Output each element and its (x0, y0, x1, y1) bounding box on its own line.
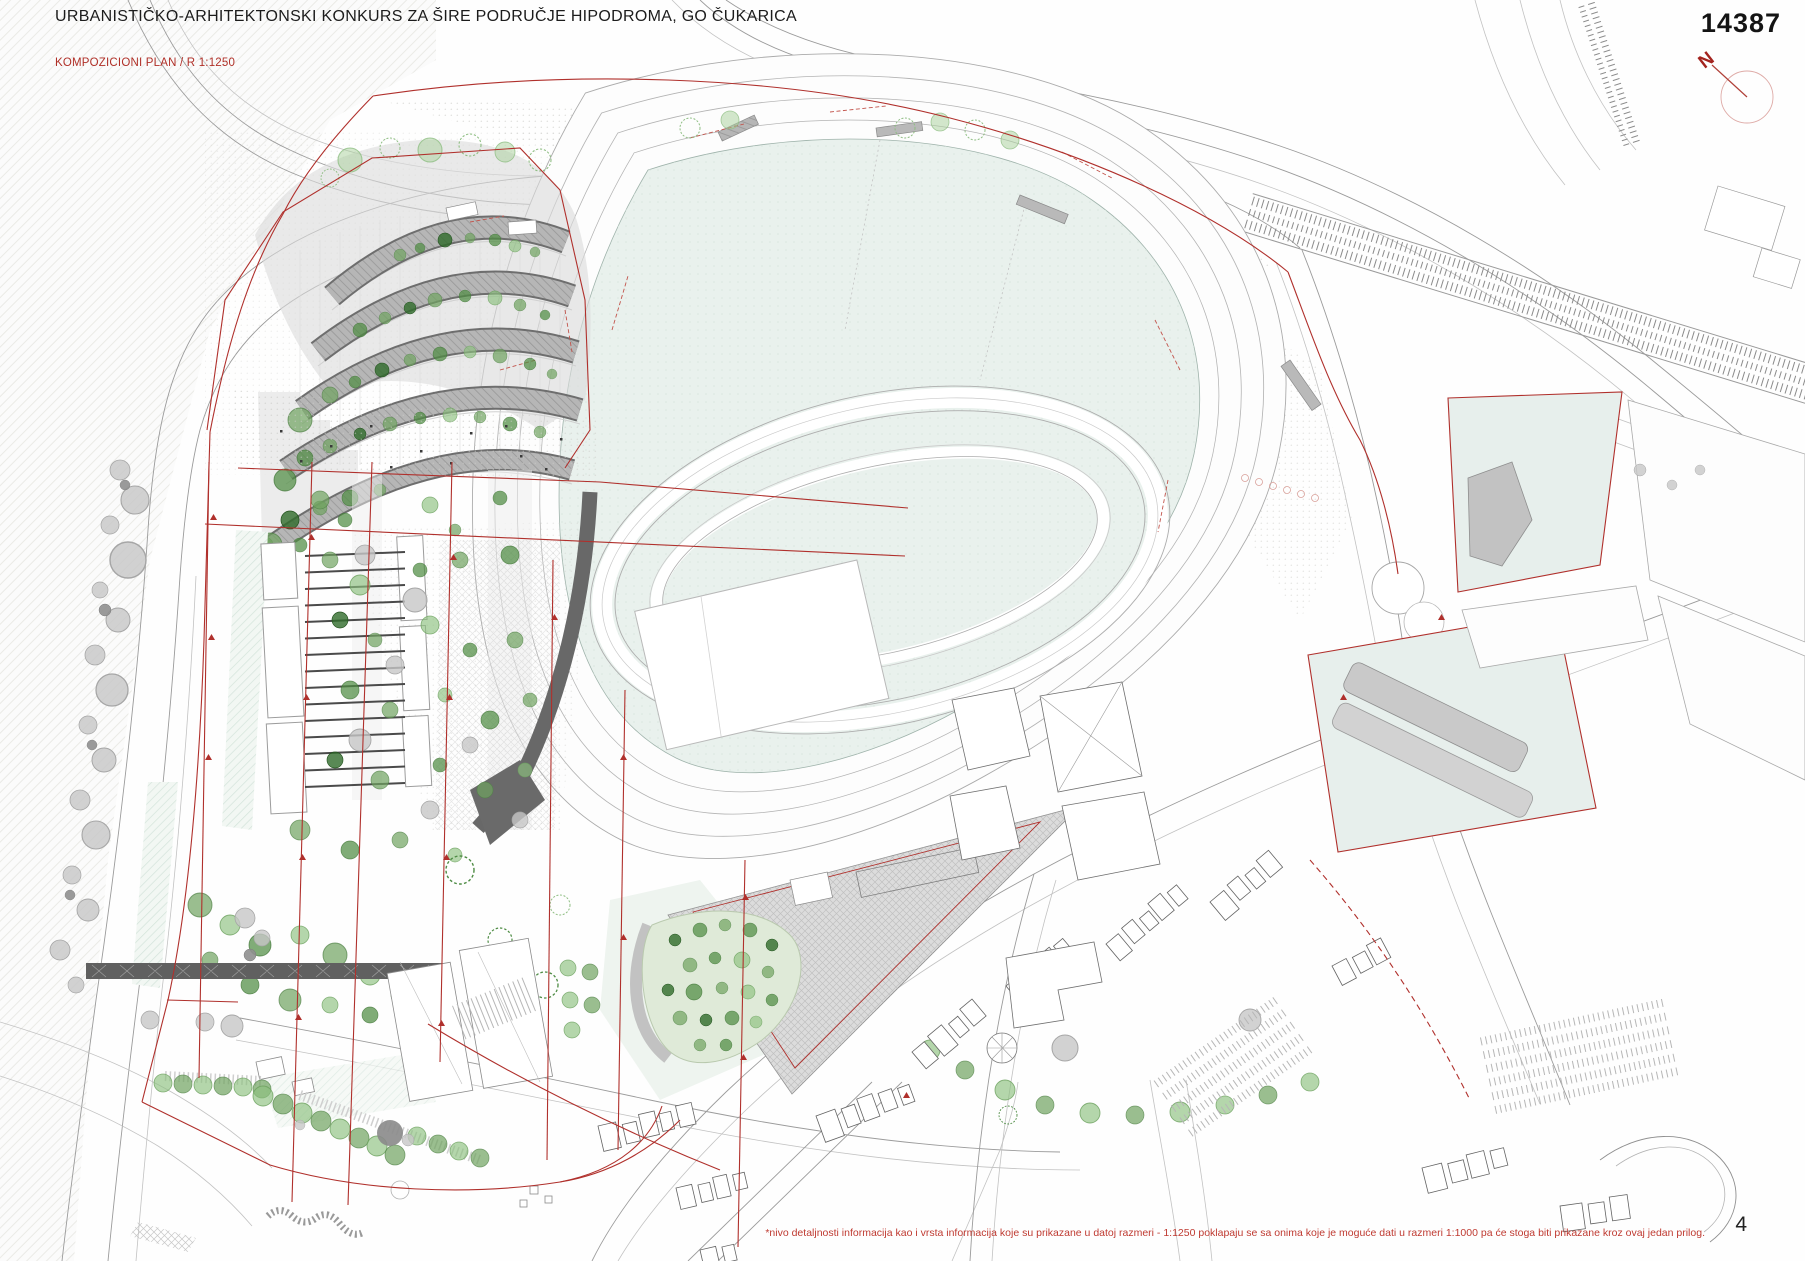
north-arrow-icon (1712, 65, 1773, 123)
page-title: URBANISTIČKO-ARHITEKTONSKI KONKURS ZA ŠI… (55, 8, 797, 26)
scale-footnote: *nivo detaljnosti informacija kao i vrst… (765, 1227, 1705, 1239)
plan-scale-label: KOMPOZICIONI PLAN / R 1:1250 (55, 57, 235, 69)
entry-code: 14387 (1701, 8, 1781, 39)
site-plan-drawing (0, 0, 1805, 1261)
page-number: 4 (1735, 1213, 1747, 1237)
hippodrome-track (472, 54, 1321, 859)
competition-sheet: URBANISTIČKO-ARHITEKTONSKI KONKURS ZA ŠI… (0, 0, 1805, 1261)
